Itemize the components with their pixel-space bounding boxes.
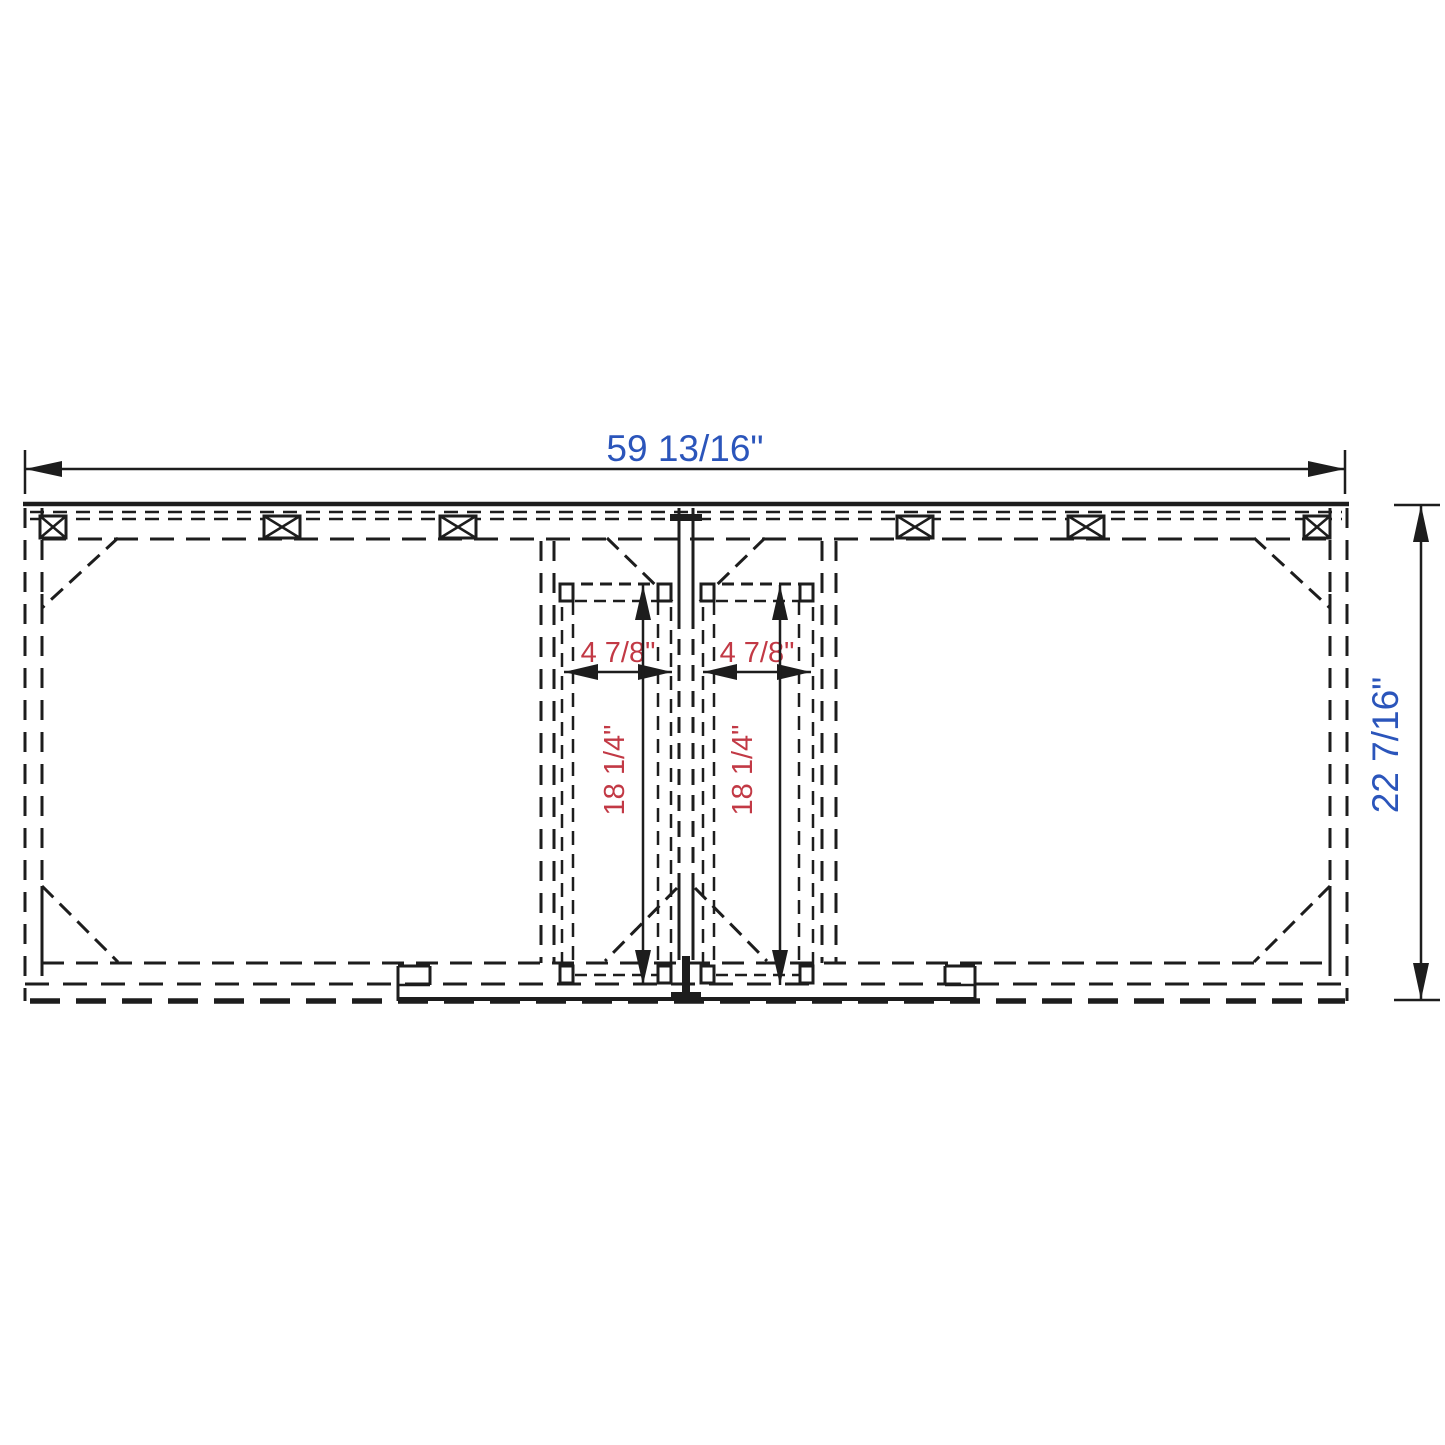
- arrowhead-up: [635, 585, 651, 620]
- arrowhead-left: [25, 461, 62, 477]
- fastener-x-marker: [440, 516, 476, 538]
- arrowhead-up: [772, 585, 788, 620]
- overall-width-dimension: 59 13/16": [25, 428, 1345, 494]
- arrowhead-down: [1413, 963, 1429, 1000]
- arrowhead-down: [772, 950, 788, 985]
- overall-depth-dimension: 22 7/16": [1365, 505, 1440, 1000]
- center-post-foot: [682, 956, 690, 994]
- cabinet-carcass: [23, 504, 1349, 1001]
- arrowhead-up: [1413, 505, 1429, 542]
- overall-depth-label: 22 7/16": [1365, 677, 1406, 814]
- fastener-x-marker: [40, 516, 66, 538]
- center-post: [670, 508, 702, 1000]
- arrowhead-down: [635, 950, 651, 985]
- left-opening-depth-label: 18 1/4": [599, 725, 631, 816]
- technical-drawing-canvas: 59 13/16" 22 7/16": [0, 0, 1445, 1445]
- fastener-x-marker: [1068, 516, 1104, 538]
- partitions: [541, 541, 836, 963]
- right-opening-depth-label: 18 1/4": [727, 725, 759, 816]
- fastener-x-marker: [1304, 516, 1330, 538]
- fastener-x-marker: [897, 516, 933, 538]
- right-opening-width-label: 4 7/8": [720, 637, 795, 669]
- fastener-x-marker: [264, 516, 300, 538]
- cabinet-plan-view-drawing: 59 13/16" 22 7/16": [0, 0, 1445, 1445]
- left-opening-width-dimension: 4 7/8": [564, 637, 672, 680]
- arrowhead-right: [1308, 461, 1345, 477]
- overall-width-label: 59 13/16": [606, 428, 763, 469]
- right-opening-width-dimension: 4 7/8": [703, 637, 811, 680]
- corner-braces: [42, 538, 1330, 963]
